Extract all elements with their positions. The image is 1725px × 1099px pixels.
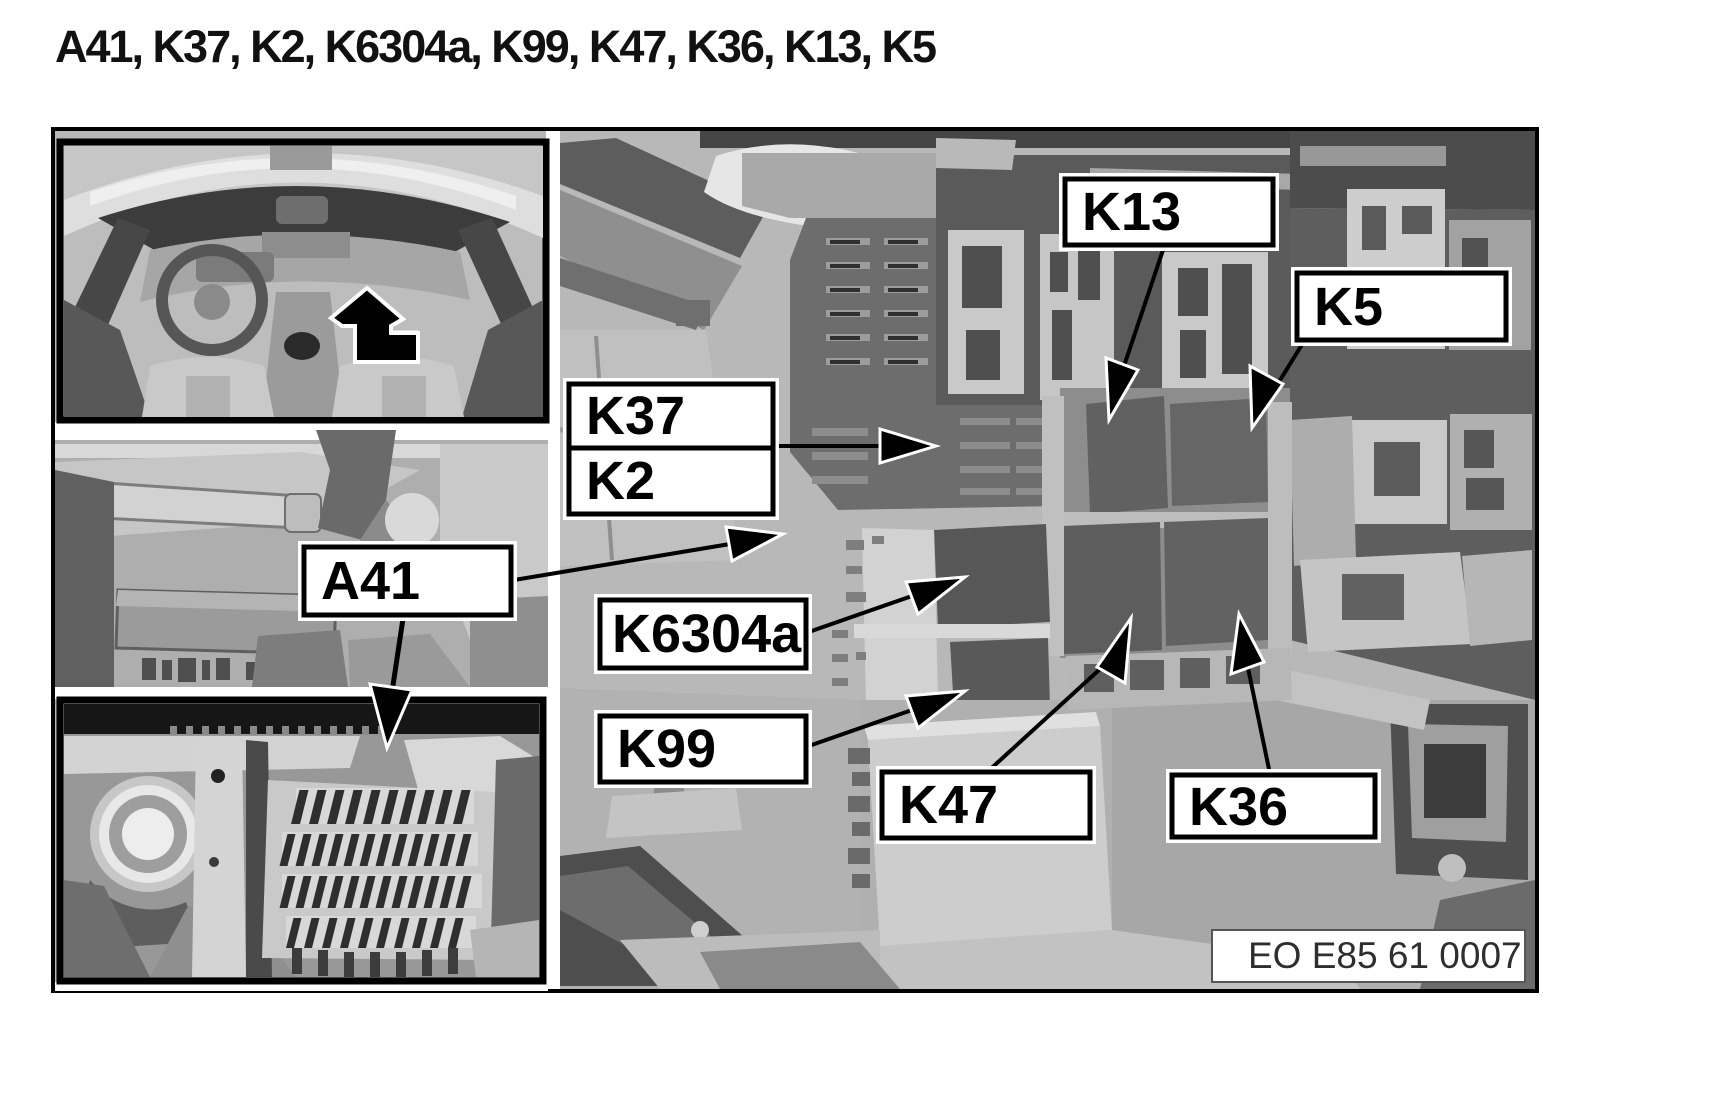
svg-text:K99: K99 <box>617 719 716 779</box>
svg-text:K13: K13 <box>1082 182 1181 242</box>
svg-text:K2: K2 <box>586 451 655 511</box>
svg-text:K47: K47 <box>899 775 998 835</box>
svg-text:K36: K36 <box>1189 777 1288 837</box>
svg-text:K5: K5 <box>1314 277 1383 337</box>
svg-text:A41: A41 <box>321 551 420 611</box>
svg-text:EO E85 61 0007: EO E85 61 0007 <box>1248 935 1522 976</box>
svg-text:A41, K37, K2, K6304a, K99, K47: A41, K37, K2, K6304a, K99, K47, K36, K13… <box>55 21 936 72</box>
svg-text:K37: K37 <box>586 386 685 446</box>
svg-text:K6304a: K6304a <box>612 604 802 664</box>
